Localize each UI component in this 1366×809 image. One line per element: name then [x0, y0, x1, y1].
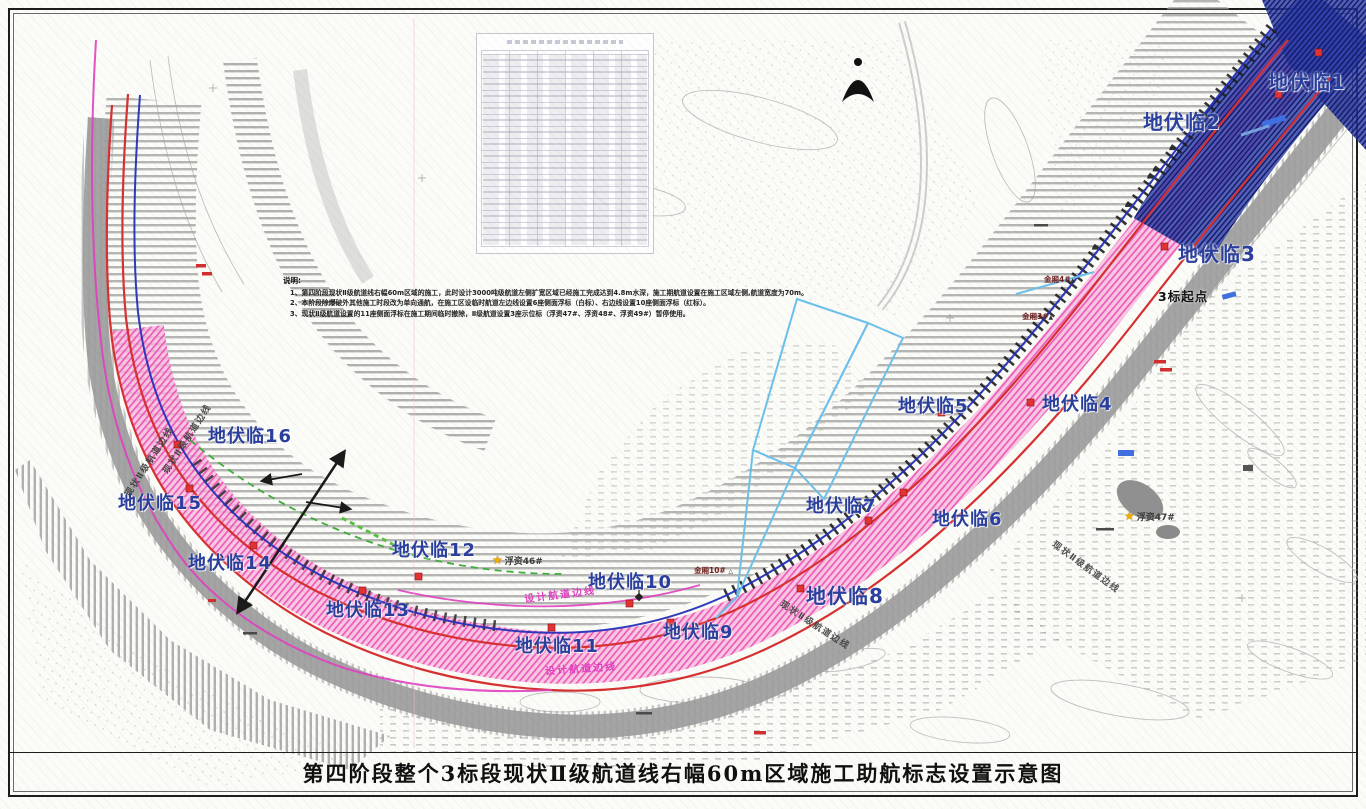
temp-marker-label-11: 地伏临11 [515, 632, 599, 658]
temp-marker-label-8: 地伏临8 [806, 580, 884, 609]
drawing-title: 第四阶段整个3标段现状Ⅱ级航道线右幅60m区域施工助航标志设置示意图 [0, 753, 1366, 793]
temp-marker-label-4: 地伏临4 [1042, 390, 1113, 416]
note-item: 3、现状Ⅱ级航道设置的11座侧面浮标在施工期间临时撤除，Ⅱ级航道设置3座示位标（… [290, 309, 808, 320]
buoy-fz46-label: 浮资46# [505, 557, 543, 567]
scanned-drawing-page: 说明: 1、第四阶段现状Ⅱ级航道线右幅60m区域的施工，此时设计3000吨级航道… [0, 0, 1366, 809]
buoy-fz47-label: 浮资47# [1137, 513, 1175, 523]
temp-marker-label-5: 地伏临5 [898, 392, 969, 418]
buoy-fz47: ★浮资47# [1124, 509, 1175, 523]
station-label: 金厢3# [1022, 312, 1049, 321]
notes-heading: 说明: [283, 276, 808, 287]
buoy-star-icon: ★ [1124, 509, 1135, 523]
note-item: 2、本阶段除爆破外其他施工时段改为单向通航，在施工区设临时航道左边线设置6座侧面… [290, 298, 808, 309]
topleft-slope [240, 60, 490, 435]
section-start-label: 3标起点 [1158, 286, 1208, 305]
station-jinxiang-4: 金厢4#▲ [1044, 274, 1075, 285]
note-item: 1、第四阶段现状Ⅱ级航道线右幅60m区域的施工，此时设计3000吨级航道左侧扩宽… [290, 288, 808, 299]
notes-block: 说明: 1、第四阶段现状Ⅱ级航道线右幅60m区域的施工，此时设计3000吨级航道… [283, 276, 808, 319]
triangle-icon: ▲ [1071, 277, 1076, 284]
station-label: 金厢4# [1044, 275, 1071, 284]
temp-marker-label-3: 地伏临3 [1178, 238, 1256, 267]
coordinate-table-text [483, 54, 647, 245]
temp-marker-label-13: 地伏临13 [326, 596, 410, 622]
topleft-slope-2 [300, 70, 368, 280]
coordinate-table-caption [507, 40, 623, 44]
temp-marker-label-12: 地伏临12 [392, 536, 476, 562]
triangle-outline-icon: △ [728, 568, 733, 575]
temp-marker-label-14: 地伏临14 [188, 549, 272, 575]
station-label: 金厢10# [694, 566, 726, 575]
temp-marker-label-2: 地伏临2 [1143, 106, 1221, 135]
temp-marker-label-16: 地伏临16 [208, 422, 292, 448]
triangle-icon: ▲ [1049, 314, 1054, 321]
coordinate-table [476, 33, 654, 254]
temp-marker-label-7: 地伏临7 [806, 492, 877, 518]
temp-marker-label-6: 地伏临6 [932, 505, 1003, 531]
buoy-fz46: ★浮资46# [492, 553, 543, 567]
station-jinxiang-3: 金厢3#▲ [1022, 311, 1053, 322]
temp-marker-label-10: 地伏临10 [588, 568, 672, 594]
temp-marker-label-9: 地伏临9 [663, 618, 734, 644]
station-jinxiang-10: 金厢10# △ [694, 565, 733, 576]
temp-marker-label-1: 地伏临1 [1268, 66, 1346, 95]
buoy-star-icon: ★ [492, 553, 503, 567]
